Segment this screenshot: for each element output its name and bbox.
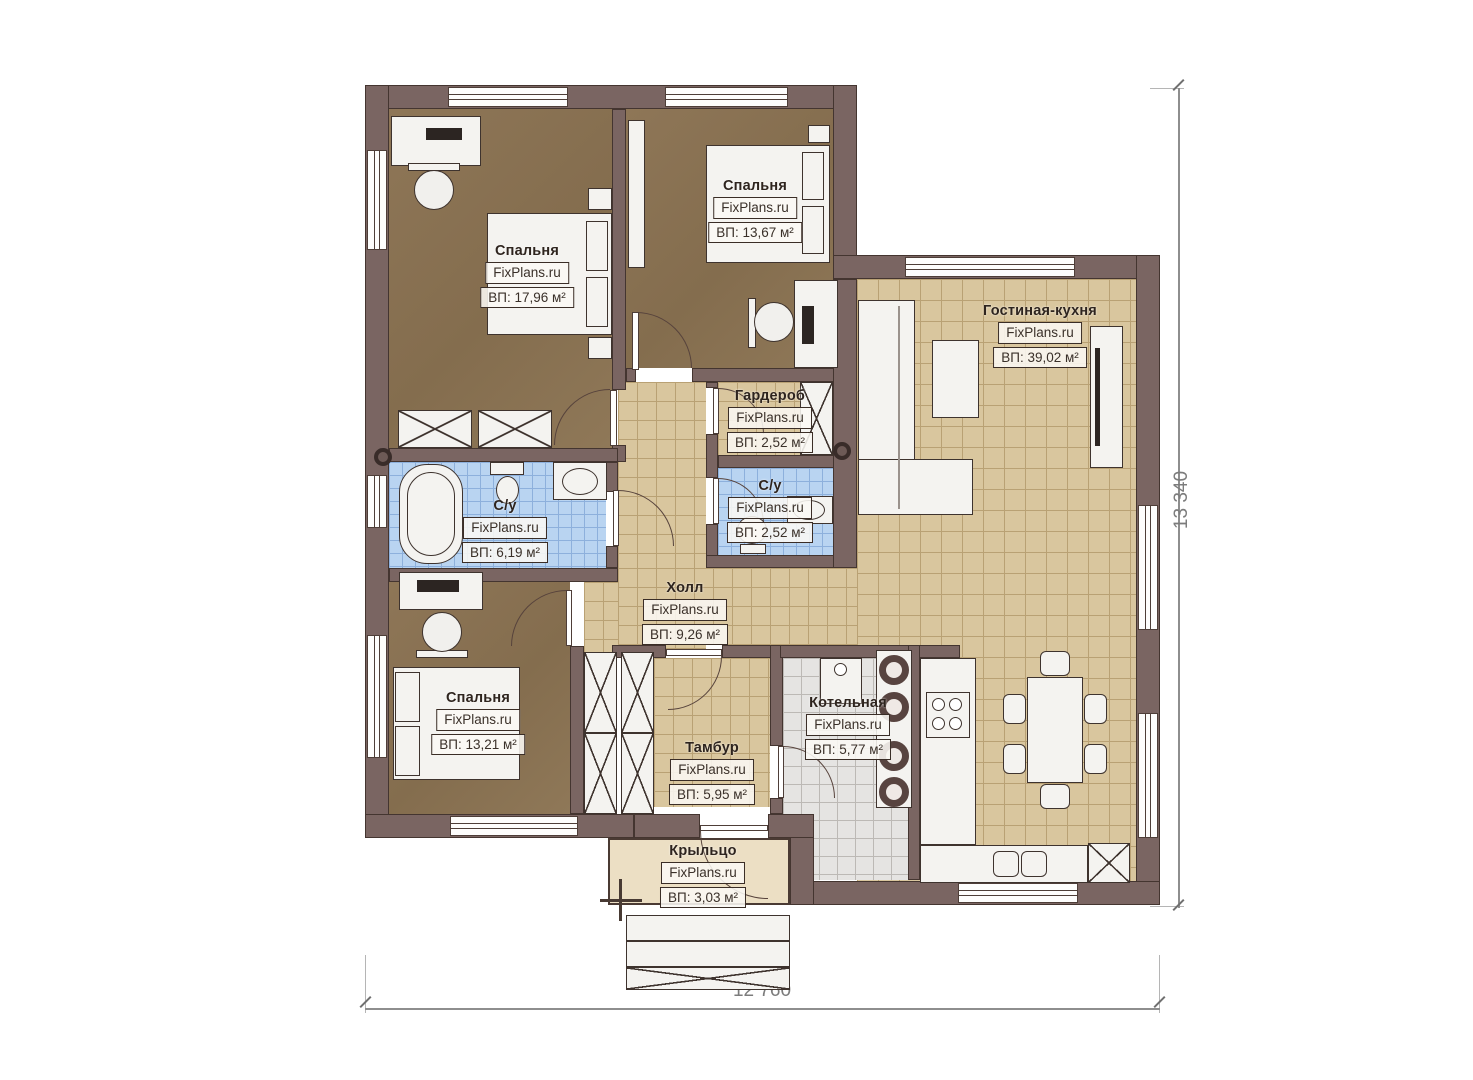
floor-plan: Спальня FixPlans.ru ВП: 17,96 м² Спальня… (0, 0, 1473, 1080)
room-area: ВП: 5,95 м² (669, 784, 755, 806)
dining-chair (1003, 694, 1026, 724)
watermark: FixPlans.ru (436, 709, 520, 731)
room-area: ВП: 2,52 м² (727, 522, 813, 544)
door-leaf (613, 490, 619, 546)
door-leaf (713, 388, 719, 434)
window (367, 475, 387, 528)
room-label-bedroom-1: Спальня FixPlans.ru ВП: 17,96 м² (480, 243, 574, 308)
room-area: ВП: 5,77 м² (805, 739, 891, 761)
room-label-living-kitchen: Гостиная-кухня FixPlans.ru ВП: 39,02 м² (983, 303, 1097, 368)
dining-chair (1040, 784, 1070, 809)
burner-icon (949, 698, 962, 711)
porch-step (626, 915, 790, 941)
window (367, 635, 387, 758)
toilet-tank (740, 544, 766, 554)
wall (389, 448, 618, 462)
room-label-bathroom-main: С/у FixPlans.ru ВП: 6,19 м² (462, 498, 548, 563)
wall (706, 555, 845, 568)
wall (606, 462, 618, 492)
sofa-seam (898, 306, 900, 509)
room-name: Спальня (723, 178, 787, 194)
pillow (802, 152, 824, 200)
wall (718, 455, 845, 468)
pillow (395, 726, 420, 776)
room-area: ВП: 39,02 м² (993, 347, 1087, 369)
window (367, 150, 387, 250)
window (665, 87, 788, 107)
dimension-extension (1159, 955, 1160, 1013)
room-label-boiler-room: Котельная FixPlans.ru ВП: 5,77 м² (805, 695, 891, 760)
wall (833, 85, 857, 279)
dining-chair (1003, 744, 1026, 774)
vent-shaft-icon (374, 448, 392, 466)
pillow (586, 277, 608, 327)
desk (794, 280, 838, 368)
room-label-bedroom-3: Спальня FixPlans.ru ВП: 13,21 м² (431, 690, 525, 755)
watermark: FixPlans.ru (713, 197, 797, 219)
office-chair (754, 302, 794, 342)
window (905, 257, 1075, 277)
watermark: FixPlans.ru (643, 599, 727, 621)
cabinet (628, 120, 645, 268)
burner-icon (949, 717, 962, 730)
nightstand (808, 125, 830, 143)
monitor (426, 128, 462, 140)
wall (706, 434, 718, 478)
room-area: ВП: 3,03 м² (660, 887, 746, 909)
pillow (395, 672, 420, 722)
watermark: FixPlans.ru (998, 322, 1082, 344)
watermark: FixPlans.ru (728, 407, 812, 429)
kitchen-sink (1021, 851, 1047, 877)
watermark: FixPlans.ru (463, 517, 547, 539)
window (958, 883, 1078, 903)
dimension-extension (365, 955, 366, 1013)
door-leaf (610, 390, 617, 446)
pillow (802, 206, 824, 254)
room-floor-hall (584, 582, 618, 652)
room-name: Котельная (809, 695, 887, 711)
wall (770, 645, 783, 746)
door-leaf (713, 478, 719, 524)
burner-icon (932, 698, 945, 711)
window (448, 87, 568, 107)
door-leaf (700, 825, 768, 831)
room-area: ВП: 13,21 м² (431, 734, 525, 756)
burner-icon (932, 717, 945, 730)
wardrobe-closet (621, 733, 654, 814)
room-label-bathroom-small: С/у FixPlans.ru ВП: 2,52 м² (727, 478, 813, 543)
wardrobe-closet (584, 733, 617, 814)
vent-shaft-icon (833, 442, 851, 460)
watermark: FixPlans.ru (806, 714, 890, 736)
wardrobe-closet (621, 652, 654, 733)
room-label-porch: Крыльцо FixPlans.ru ВП: 3,03 м² (660, 843, 746, 908)
room-area: ВП: 17,96 м² (480, 287, 574, 309)
room-area: ВП: 6,19 м² (462, 542, 548, 564)
toilet-tank (490, 462, 524, 475)
room-name: Спальня (446, 690, 510, 706)
room-name: С/у (493, 498, 516, 514)
wall (570, 646, 584, 814)
sofa-chaise (858, 459, 973, 515)
room-label-wardrobe: Гардероб FixPlans.ru ВП: 2,52 м² (727, 388, 813, 453)
room-name: Крыльцо (669, 843, 736, 859)
wall (634, 814, 700, 838)
pillow (586, 221, 608, 271)
dimension-line-bottom (365, 1008, 1160, 1010)
bathtub-basin (407, 472, 455, 556)
wardrobe-closet (478, 410, 552, 448)
dimension-height-label: 13 340 (1171, 452, 1193, 548)
wall (780, 645, 960, 658)
cooktop (926, 692, 970, 738)
watermark: FixPlans.ru (485, 262, 569, 284)
window (1138, 713, 1158, 838)
nightstand (588, 188, 612, 210)
wall (768, 814, 814, 838)
boiler-equipment-icon (879, 777, 909, 807)
fridge (1088, 843, 1130, 883)
wardrobe-closet (398, 410, 472, 448)
nightstand (588, 337, 612, 359)
porch-steps (626, 967, 790, 990)
dining-chair (1040, 651, 1070, 676)
monitor (802, 306, 814, 344)
wall (770, 798, 783, 814)
boiler-equipment-icon (879, 655, 909, 685)
coffee-table (932, 340, 979, 418)
window (1138, 505, 1158, 630)
door-leaf (566, 590, 572, 646)
room-area: ВП: 2,52 м² (727, 432, 813, 454)
monitor (417, 580, 459, 592)
room-name: Гостиная-кухня (983, 303, 1097, 319)
sink (562, 468, 598, 495)
kitchen-sink (993, 851, 1019, 877)
room-name: Гардероб (735, 388, 805, 404)
office-chair (414, 170, 454, 210)
wardrobe-closet (584, 652, 617, 733)
wall (612, 109, 626, 390)
dining-chair (1084, 744, 1107, 774)
porch-step (626, 941, 790, 967)
room-label-bedroom-2: Спальня FixPlans.ru ВП: 13,67 м² (708, 178, 802, 243)
room-name: Тамбур (685, 740, 739, 756)
room-area: ВП: 9,26 м² (642, 624, 728, 646)
dining-table (1027, 677, 1083, 783)
benchmark-cross-icon (619, 879, 622, 921)
room-name: С/у (758, 478, 781, 494)
desk (391, 116, 481, 166)
dining-chair (1084, 694, 1107, 724)
room-name: Спальня (495, 243, 559, 259)
watermark: FixPlans.ru (670, 759, 754, 781)
room-name: Холл (666, 580, 703, 596)
room-label-hall: Холл FixPlans.ru ВП: 9,26 м² (642, 580, 728, 645)
kitchen-counter (920, 658, 976, 845)
room-label-vestibule: Тамбур FixPlans.ru ВП: 5,95 м² (669, 740, 755, 805)
watermark: FixPlans.ru (661, 862, 745, 884)
wall (626, 368, 636, 382)
room-area: ВП: 13,67 м² (708, 222, 802, 244)
boiler-dial-icon (834, 663, 847, 676)
door-leaf (778, 746, 784, 798)
door-leaf (632, 312, 639, 370)
door-leaf (666, 649, 722, 656)
window (450, 816, 578, 836)
wall (606, 546, 618, 568)
office-chair (422, 612, 462, 652)
watermark: FixPlans.ru (728, 497, 812, 519)
